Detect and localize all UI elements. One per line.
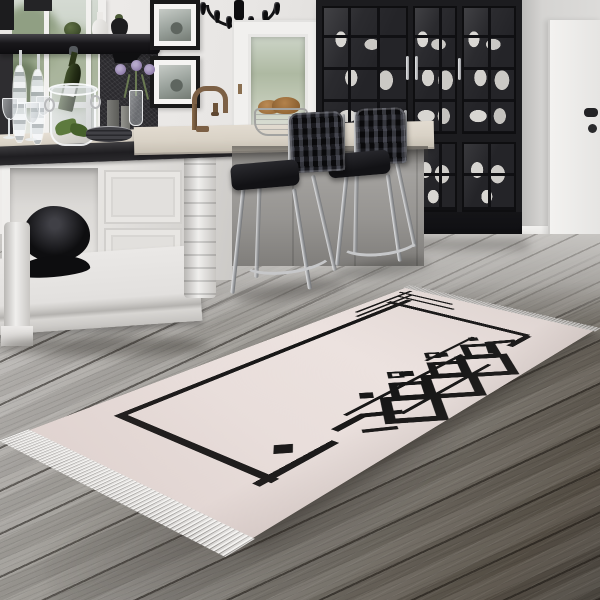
bw-photo bbox=[159, 9, 191, 41]
island-panel bbox=[104, 170, 182, 224]
picture-frame-partial bbox=[24, 0, 52, 11]
island-leg bbox=[4, 222, 30, 334]
picture-frame-partial bbox=[0, 0, 14, 30]
cabinet-door-glass bbox=[413, 6, 457, 134]
bw-photo bbox=[159, 65, 191, 99]
island-lower-shelf bbox=[0, 245, 202, 335]
allium-flower bbox=[144, 64, 155, 75]
white-door bbox=[548, 20, 600, 242]
wine-glass-foot bbox=[3, 136, 15, 139]
flower-vase bbox=[129, 90, 143, 126]
wine-glass-stem bbox=[30, 122, 32, 138]
wine-glass-foot bbox=[25, 138, 37, 141]
faucet-base bbox=[196, 126, 209, 132]
door-hinge bbox=[238, 84, 242, 94]
wine-glass-stem bbox=[8, 118, 10, 136]
faucet-nozzle bbox=[211, 112, 219, 116]
cabinet-handle bbox=[458, 58, 461, 80]
ice-bucket-rim bbox=[48, 83, 98, 96]
plate-stack bbox=[86, 126, 132, 142]
faucet-arch bbox=[192, 86, 228, 113]
cabinet-door-glass bbox=[462, 6, 516, 134]
cabinet-handle bbox=[406, 56, 409, 80]
bucket-handle bbox=[90, 95, 101, 109]
cabinet-handle bbox=[415, 56, 418, 80]
black-sculpture-bowl bbox=[22, 206, 90, 262]
island-column bbox=[184, 150, 216, 298]
island-floor-shadow bbox=[0, 336, 210, 356]
floating-shelf bbox=[0, 34, 160, 54]
allium-flower bbox=[115, 64, 126, 75]
chandelier-candle bbox=[200, 2, 206, 15]
kitchen-scene bbox=[0, 0, 600, 600]
door-deadbolt bbox=[588, 124, 597, 133]
chandelier-candle bbox=[274, 2, 280, 15]
bucket-handle bbox=[44, 98, 55, 112]
granite-return bbox=[0, 50, 13, 142]
picture-frame bbox=[150, 0, 200, 50]
allium-flower bbox=[131, 60, 142, 71]
window-mullion bbox=[44, 0, 49, 138]
cabinet-door-glass bbox=[462, 142, 516, 212]
door-handle bbox=[584, 108, 598, 117]
